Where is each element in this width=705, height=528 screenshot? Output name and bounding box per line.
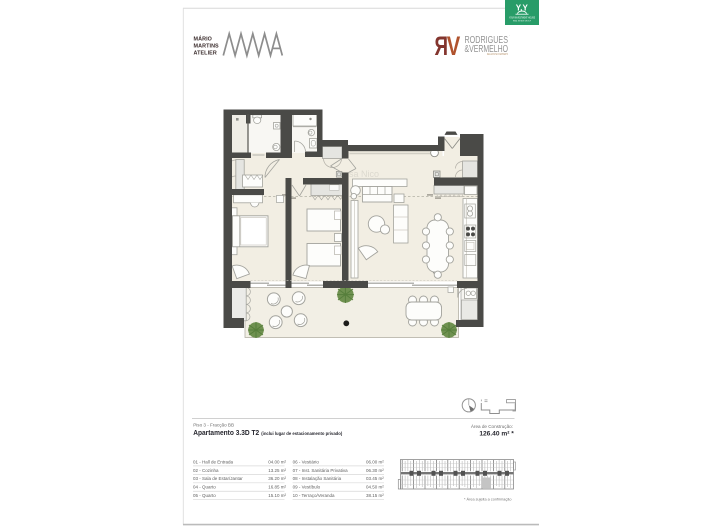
svg-text:REAL ESTATE INVESTMENTS: REAL ESTATE INVESTMENTS bbox=[487, 52, 508, 56]
svg-text:04.50 m²: 04.50 m² bbox=[366, 485, 384, 490]
svg-text:06 - Vestiário: 06 - Vestiário bbox=[293, 459, 320, 464]
svg-text:06.30 m²: 06.30 m² bbox=[366, 468, 384, 473]
svg-text:15.10 m²: 15.10 m² bbox=[268, 493, 286, 498]
svg-text:´: ´ bbox=[509, 35, 510, 39]
svg-text:06.00 m²: 06.00 m² bbox=[366, 459, 384, 464]
svg-text:36.20 m²: 36.20 m² bbox=[268, 476, 286, 481]
svg-text:02 - Cozinha: 02 - Cozinha bbox=[193, 468, 219, 473]
svg-text:01 - Hall de Entrada: 01 - Hall de Entrada bbox=[193, 459, 234, 464]
svg-text:YOUR INVESTMENT HOUSE: YOUR INVESTMENT HOUSE bbox=[509, 15, 535, 19]
svg-text:05 - Quarto: 05 - Quarto bbox=[193, 493, 216, 498]
svg-text:03.45 m²: 03.45 m² bbox=[366, 476, 384, 481]
svg-text:04 - Quarto: 04 - Quarto bbox=[193, 485, 216, 490]
svg-text:V: V bbox=[447, 31, 461, 61]
svg-text:Apartamento 3.3D T2 (inclui l: Apartamento 3.3D T2 (inclui lugar de est… bbox=[193, 428, 343, 437]
svg-text:Piso 3 - Fracção BB: Piso 3 - Fracção BB bbox=[193, 423, 234, 428]
svg-text:03 - Sala de Estar/Jantar: 03 - Sala de Estar/Jantar bbox=[193, 476, 243, 481]
svg-text:* Área sujeita a confirmação: * Área sujeita a confirmação bbox=[464, 498, 512, 502]
svg-text:MÁRIO: MÁRIO bbox=[194, 36, 212, 43]
svg-text:13.25 m²: 13.25 m² bbox=[268, 468, 286, 473]
svg-text:ATELIER: ATELIER bbox=[194, 50, 217, 56]
svg-text:REAL ESTATE GROUP: REAL ESTATE GROUP bbox=[513, 20, 531, 23]
svg-text:sa Nico: sa Nico bbox=[349, 169, 379, 179]
svg-text:09 - Vestíbulo: 09 - Vestíbulo bbox=[293, 485, 321, 490]
svg-text:126.40 m² *: 126.40 m² * bbox=[479, 430, 514, 437]
svg-text:Área de Construção:: Área de Construção: bbox=[471, 423, 513, 429]
svg-text:38.15 m²: 38.15 m² bbox=[366, 493, 384, 498]
svg-text:MARTINS: MARTINS bbox=[194, 44, 220, 50]
svg-text:10 - Terraço/Veranda: 10 - Terraço/Veranda bbox=[293, 493, 335, 498]
svg-text:07 - Inst. Sanitária Privativa: 07 - Inst. Sanitária Privativa bbox=[293, 468, 349, 473]
svg-text:08 - Instalação Sanitária: 08 - Instalação Sanitária bbox=[293, 476, 342, 481]
svg-text:16.85 m²: 16.85 m² bbox=[268, 485, 286, 490]
svg-text:04.00 m²: 04.00 m² bbox=[268, 459, 286, 464]
